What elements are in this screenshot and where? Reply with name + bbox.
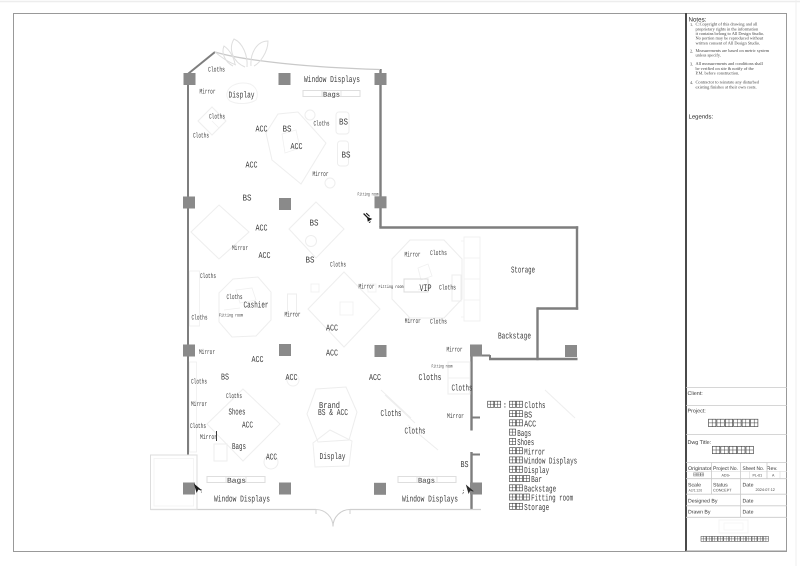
- svg-text:ACC: ACC: [369, 373, 381, 383]
- svg-text:Mirror: Mirror: [447, 412, 464, 421]
- svg-text:Window Displays: Window Displays: [214, 494, 270, 504]
- svg-text:Cloths: Cloths: [192, 314, 208, 323]
- svg-text:unless specify.: unless specify.: [696, 53, 721, 58]
- svg-text:Shoes: Shoes: [229, 408, 246, 418]
- svg-text:ACC: ACC: [256, 224, 268, 234]
- svg-text:Mirror: Mirror: [199, 348, 215, 357]
- svg-text:Dwg Title:: Dwg Title:: [688, 440, 712, 446]
- svg-text:Date: Date: [743, 510, 754, 516]
- svg-text:Cloths: Cloths: [190, 422, 206, 431]
- svg-text:ACC: ACC: [326, 349, 338, 359]
- svg-text:A2/1:120: A2/1:120: [689, 489, 703, 493]
- svg-text:Fitting room: Fitting room: [432, 363, 453, 369]
- svg-text:Cloths: Cloths: [430, 317, 447, 326]
- svg-text:Mirror: Mirror: [447, 345, 463, 354]
- svg-text:Cloths: Cloths: [314, 120, 330, 129]
- svg-text:Date: Date: [743, 482, 754, 488]
- svg-text:Fitting room: Fitting room: [219, 312, 243, 318]
- svg-text:Cloths: Cloths: [452, 384, 473, 394]
- svg-text:BS: BS: [342, 151, 351, 161]
- svg-text:4.: 4.: [690, 80, 693, 85]
- svg-text:Cloths: Cloths: [209, 113, 225, 122]
- svg-text:existing finishes at their own: existing finishes at their own costs.: [696, 84, 757, 89]
- svg-text:ADS-: ADS-: [722, 473, 731, 477]
- svg-text:ACC: ACC: [256, 125, 268, 135]
- svg-text:1.: 1.: [690, 22, 693, 27]
- svg-text:BS: BS: [461, 460, 469, 470]
- svg-text:BS: BS: [221, 373, 229, 383]
- svg-text:ACC: ACC: [291, 142, 303, 152]
- svg-text:ACC: ACC: [259, 251, 271, 261]
- svg-text:Cloths: Cloths: [405, 427, 426, 437]
- svg-text:Mirror: Mirror: [232, 244, 248, 253]
- svg-text:written consent of All Design: written consent of All Design Studio.: [696, 40, 761, 45]
- svg-text:Drawn By: Drawn By: [688, 510, 711, 516]
- svg-text:2024-07-12: 2024-07-12: [756, 488, 775, 492]
- svg-text:ACC: ACC: [242, 421, 253, 431]
- svg-text:Backstage: Backstage: [498, 331, 531, 341]
- svg-text:BS: BS: [339, 118, 348, 128]
- svg-text:ACC: ACC: [266, 453, 277, 463]
- svg-text:Mirror: Mirror: [285, 310, 301, 319]
- svg-text:Mirror: Mirror: [200, 433, 217, 442]
- svg-text:P.M. before construction.: P.M. before construction.: [696, 71, 740, 76]
- svg-text:Designed By: Designed By: [688, 498, 718, 504]
- svg-text:Bags: Bags: [227, 477, 246, 485]
- svg-text:Window Displays: Window Displays: [304, 75, 360, 85]
- svg-text:Storage: Storage: [511, 266, 535, 276]
- svg-text:Bags: Bags: [232, 442, 246, 452]
- svg-text:Cloths: Cloths: [330, 261, 346, 270]
- svg-text:ACC: ACC: [286, 373, 298, 383]
- svg-text:PL-01: PL-01: [753, 473, 763, 477]
- svg-text:Cloths: Cloths: [191, 378, 207, 387]
- svg-text:Scale: Scale: [688, 482, 701, 488]
- svg-text:VIP: VIP: [420, 284, 432, 295]
- svg-text:CONCEPT: CONCEPT: [713, 489, 732, 493]
- svg-text:BS: BS: [283, 125, 292, 135]
- svg-text:Bags: Bags: [418, 477, 435, 485]
- svg-text:Cloths: Cloths: [381, 409, 402, 419]
- svg-text:Cloths: Cloths: [439, 283, 456, 292]
- svg-text:ACC: ACC: [246, 161, 258, 171]
- svg-text:BS & ACC: BS & ACC: [318, 408, 348, 418]
- svg-text:BS: BS: [310, 219, 319, 229]
- svg-text:BS: BS: [306, 256, 315, 266]
- svg-text:;: ;: [462, 488, 466, 495]
- svg-text:Mirror: Mirror: [405, 250, 421, 259]
- svg-text:Date: Date: [743, 498, 754, 504]
- svg-text:Cloths: Cloths: [419, 373, 442, 383]
- svg-text:Window Displays: Window Displays: [402, 494, 458, 504]
- svg-text:Cloths: Cloths: [200, 272, 216, 281]
- svg-text:Cloths: Cloths: [430, 249, 447, 258]
- svg-text:3.: 3.: [690, 62, 693, 67]
- svg-text:Fitting room: Fitting room: [379, 284, 404, 290]
- svg-text:Cloths: Cloths: [226, 392, 242, 401]
- svg-text:2.: 2.: [690, 49, 693, 54]
- svg-text::: :: [200, 488, 204, 495]
- svg-text:Client:: Client:: [688, 391, 703, 397]
- svg-text:Fitting room: Fitting room: [358, 191, 379, 197]
- svg-text:Display: Display: [229, 91, 255, 101]
- svg-text:ACC: ACC: [252, 355, 264, 365]
- svg-text:Status: Status: [713, 482, 728, 488]
- svg-text:Project:: Project:: [688, 409, 706, 415]
- svg-text:Mirror: Mirror: [313, 170, 329, 179]
- svg-text:BS: BS: [243, 194, 252, 204]
- svg-text:ACC: ACC: [326, 324, 338, 334]
- svg-text:Mirror: Mirror: [359, 283, 375, 292]
- svg-text:Mirror: Mirror: [191, 400, 207, 409]
- svg-text:Legends:: Legends:: [689, 114, 714, 121]
- svg-text:Mirror: Mirror: [405, 317, 421, 326]
- svg-text::: :: [503, 401, 508, 410]
- svg-text:Cloths: Cloths: [227, 293, 243, 302]
- svg-text:Bags: Bags: [323, 91, 340, 99]
- svg-text:Cashier: Cashier: [244, 301, 269, 311]
- svg-text:Mirror: Mirror: [200, 88, 216, 97]
- svg-text:Display: Display: [320, 452, 346, 462]
- svg-text:Storage: Storage: [524, 503, 549, 513]
- svg-text:Cloths: Cloths: [208, 66, 225, 75]
- svg-text:Cloths: Cloths: [193, 132, 209, 141]
